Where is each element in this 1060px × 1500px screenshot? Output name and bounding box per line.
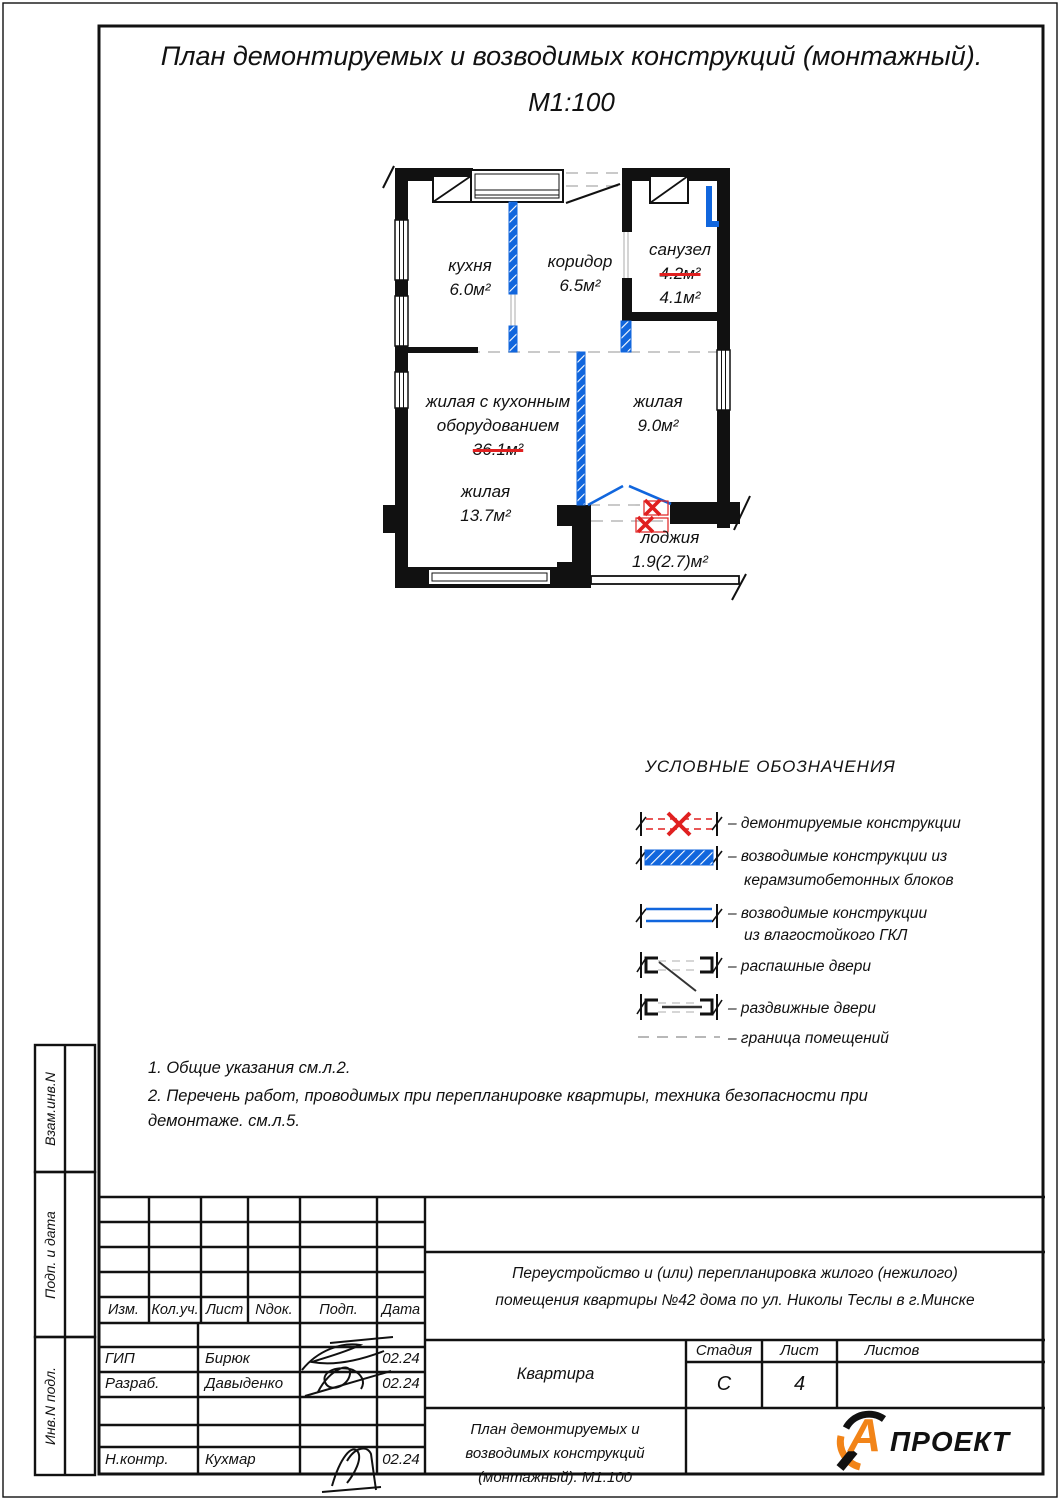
col-ndok: Nдок. (248, 1301, 300, 1319)
room-bathroom-area-old: 4.2м² (660, 264, 701, 283)
room-living-kitchen-area-old: 36.1м² (473, 440, 523, 459)
drawing-sheet: План демонтируемых и возводимых конструк… (0, 0, 1060, 1500)
row-nkontr-date: 02.24 (377, 1451, 425, 1470)
col-izm: Изм. (98, 1301, 149, 1319)
room-loggia-name: лоджия (605, 526, 735, 550)
room-living-9-name: жилая (598, 390, 718, 414)
room-loggia-area: 1.9(2.7)м² (605, 550, 735, 574)
row-razrab-name: Давыденко (205, 1375, 283, 1394)
row-gip-role: ГИП (105, 1350, 135, 1369)
legend-symbols (636, 812, 722, 1037)
room-bathroom: санузел 4.2м² 4.1м² (622, 238, 738, 310)
room-living-9: жилая 9.0м² (598, 390, 718, 438)
row-gip-name: Бирюк (205, 1350, 250, 1369)
note-2: 2. Перечень работ, проводимых при перепл… (148, 1084, 958, 1134)
sheet-label: Лист (762, 1342, 837, 1361)
room-bathroom-area-new: 4.1м² (622, 286, 738, 310)
row-razrab-role: Разраб. (105, 1375, 159, 1394)
sidebar-inv: Инв.N подл. (35, 1337, 65, 1475)
note-1: 1. Общие указания см.л.2. (148, 1058, 350, 1079)
doc-title: План демонтируемых и возводимых конструк… (435, 1418, 675, 1490)
legend-swing-doors-label: – распашные двери (728, 957, 871, 976)
legend-demolished-label: – демонтируемые конструкции (728, 814, 961, 833)
object-name: Квартира (425, 1364, 686, 1385)
sidebar-inv-label: Инв.N подл. (42, 1367, 58, 1445)
drawing-scale: М1:100 (98, 86, 1045, 119)
room-living-13-name: жилая (418, 480, 553, 504)
project-description: Переустройство и (или) перепланировка жи… (475, 1260, 995, 1314)
room-living-kitchen-name2: оборудованием (398, 414, 598, 438)
room-living-kitchen-name1: жилая с кухонным (398, 390, 598, 414)
stage-label: Стадия (686, 1342, 762, 1361)
sheet-value: 4 (762, 1372, 837, 1397)
room-living-kitchen: жилая с кухонным оборудованием 36.1м² (398, 390, 598, 462)
row-gip-date: 02.24 (377, 1350, 425, 1369)
sidebar-vzam: Взам.инв.N (35, 1045, 65, 1172)
sidebar-podp-data-label: Подп. и дата (42, 1211, 58, 1299)
sheets-label: Листов (837, 1342, 947, 1361)
room-living-13-area: 13.7м² (418, 504, 553, 528)
col-data: Дата (377, 1301, 425, 1319)
legend-title: УСЛОВНЫЕ ОБОЗНАЧЕНИЯ (645, 756, 896, 777)
row-razrab-date: 02.24 (377, 1375, 425, 1394)
col-list: Лист (201, 1301, 248, 1319)
col-podp: Подп. (300, 1301, 377, 1319)
room-bathroom-name: санузел (622, 238, 738, 262)
legend-gkl-line1: – возводимые конструкции (728, 904, 927, 923)
logo-letter: А (848, 1408, 881, 1462)
sidebar-vzam-label: Взам.инв.N (42, 1072, 58, 1146)
row-nkontr-role: Н.контр. (105, 1451, 169, 1470)
room-loggia: лоджия 1.9(2.7)м² (605, 526, 735, 574)
room-living-9-area: 9.0м² (598, 414, 718, 438)
room-living-13: жилая 13.7м² (418, 480, 553, 528)
logo-text: ПРОЕКТ (890, 1426, 1010, 1458)
legend-keramzit-line1: – возводимые конструкции из (728, 847, 947, 866)
legend-sliding-doors-label: – раздвижные двери (728, 999, 876, 1018)
drawing-title: План демонтируемых и возводимых конструк… (98, 40, 1045, 74)
row-nkontr-name: Кухмар (205, 1451, 256, 1470)
sidebar-podp-data: Подп. и дата (35, 1172, 65, 1337)
col-koluch: Кол.уч. (149, 1301, 201, 1319)
legend-keramzit-line2: керамзитобетонных блоков (744, 871, 954, 890)
legend-boundary-label: – граница помещений (728, 1029, 889, 1048)
legend-gkl-line2: из влагостойкого ГКЛ (744, 926, 907, 945)
stage-value: С (686, 1372, 762, 1397)
